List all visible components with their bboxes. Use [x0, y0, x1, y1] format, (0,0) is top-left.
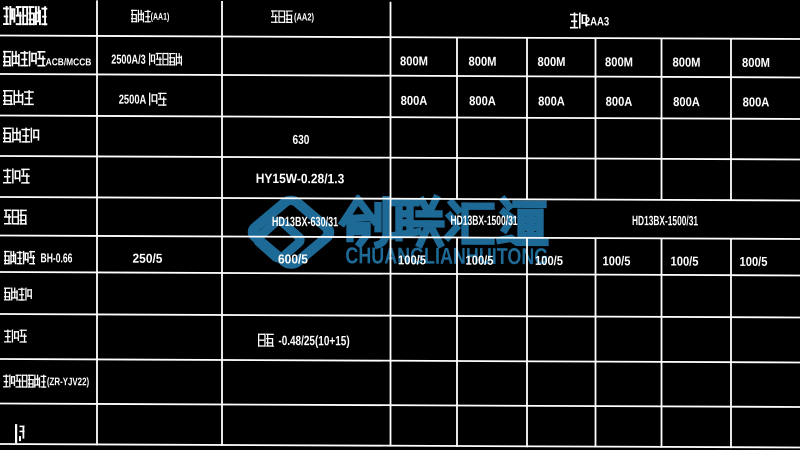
svg-text:800A: 800A [469, 93, 496, 108]
svg-text:630: 630 [293, 133, 310, 148]
svg-text:800M: 800M [742, 55, 770, 70]
svg-text:HD13BX-1500/31: HD13BX-1500/31 [450, 214, 517, 229]
svg-text:100/5: 100/5 [398, 253, 426, 268]
svg-text:100/5: 100/5 [535, 253, 563, 268]
svg-text:HY15W-0.28/1.3: HY15W-0.28/1.3 [256, 170, 344, 186]
svg-text:(AA2): (AA2) [294, 11, 314, 23]
svg-text:800M: 800M [469, 54, 497, 69]
svg-text:800A: 800A [673, 94, 700, 109]
svg-text:250/5: 250/5 [133, 251, 163, 266]
svg-text:800A: 800A [606, 94, 633, 109]
svg-text:100/5: 100/5 [671, 254, 699, 269]
svg-text:2500A/3: 2500A/3 [111, 53, 145, 67]
svg-text:2AA3: 2AA3 [585, 15, 610, 28]
svg-text:800A: 800A [401, 93, 428, 108]
svg-text:(ZR-YJV22): (ZR-YJV22) [47, 376, 89, 389]
svg-text:100/5: 100/5 [466, 253, 494, 268]
svg-text:BH-0.66: BH-0.66 [41, 252, 73, 266]
svg-text:CHUANGLIANHUITONG: CHUANGLIANHUITONG [345, 243, 548, 270]
svg-text:800A: 800A [743, 95, 770, 110]
svg-text:100/5: 100/5 [740, 254, 768, 269]
svg-text:800M: 800M [538, 54, 566, 69]
svg-text:800M: 800M [400, 54, 428, 69]
svg-text:800A: 800A [538, 94, 565, 109]
svg-text:800M: 800M [605, 54, 633, 69]
svg-text:2500A: 2500A [119, 93, 147, 107]
svg-text:-0.48/25(10+15): -0.48/25(10+15) [278, 333, 349, 349]
svg-text:800M: 800M [673, 55, 701, 70]
svg-text:100/5: 100/5 [603, 253, 631, 268]
svg-text:HD13BX-1500/31: HD13BX-1500/31 [632, 214, 698, 229]
svg-text:600/5: 600/5 [278, 252, 308, 267]
svg-text:ACB/MCCB: ACB/MCCB [46, 57, 92, 68]
svg-text:HD13BX-630/31: HD13BX-630/31 [272, 215, 339, 229]
svg-text:(AA1): (AA1) [151, 10, 170, 22]
